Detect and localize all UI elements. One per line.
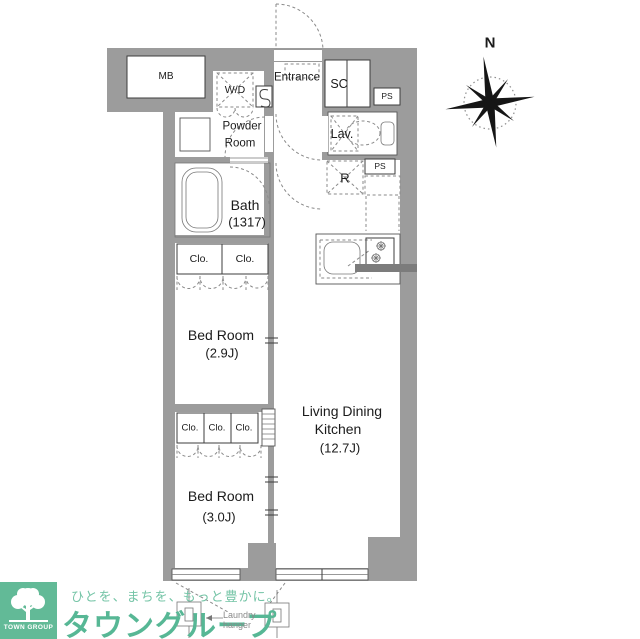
label-closet-2c: Clo. (236, 423, 253, 433)
label-bedroom2-size: (3.0J) (202, 511, 235, 524)
label-mb: MB (159, 72, 174, 82)
powder-cabinet (180, 118, 210, 151)
ladder-hatch (262, 409, 275, 446)
water-heater-icon (256, 86, 272, 107)
label-closet-1b: Clo. (236, 254, 255, 265)
town-group-badge: TOWN GROUP (0, 624, 57, 631)
floor-plan-svg (0, 0, 640, 639)
label-powder-1: Powder (223, 121, 262, 133)
label-closet-2a: Clo. (182, 423, 199, 433)
label-closet-2b: Clo. (209, 423, 226, 433)
bathtub-icon (182, 168, 222, 232)
floor-plan-page: MB W/D Entrance SC PS Lav. PS R Powder R… (0, 0, 640, 639)
label-sc: SC (330, 78, 347, 91)
closet-row-1 (177, 244, 268, 290)
label-ldk-size: (12.7J) (320, 442, 360, 455)
label-bedroom1-size: (2.9J) (205, 347, 238, 360)
entrance-door (274, 4, 323, 78)
label-wd: W/D (225, 85, 245, 96)
label-powder-2: Room (225, 138, 256, 150)
label-ldk-1: Living Dining (302, 404, 382, 418)
closet-row-2 (177, 409, 275, 458)
compass-icon (439, 50, 541, 154)
brand-tagline: ひとを、まちを、もっと豊かに。 (71, 586, 281, 605)
label-refrigerator: R (340, 172, 349, 185)
label-entrance: Entrance (274, 72, 320, 84)
label-closet-1a: Clo. (190, 254, 209, 265)
label-bedroom1: Bed Room (188, 328, 254, 342)
counter-half-wall (355, 264, 417, 272)
label-bath-size: (1317) (228, 216, 266, 229)
laundry-hanger-note: Laundry hanger (223, 610, 269, 631)
label-ps-top: PS (381, 92, 392, 101)
label-ps-mid: PS (374, 162, 385, 171)
label-bedroom2: Bed Room (188, 489, 254, 503)
label-ldk-2: Kitchen (315, 422, 362, 436)
label-lav: Lav. (331, 128, 354, 141)
label-bath: Bath (231, 198, 260, 212)
compass-north-label: N (485, 36, 496, 51)
